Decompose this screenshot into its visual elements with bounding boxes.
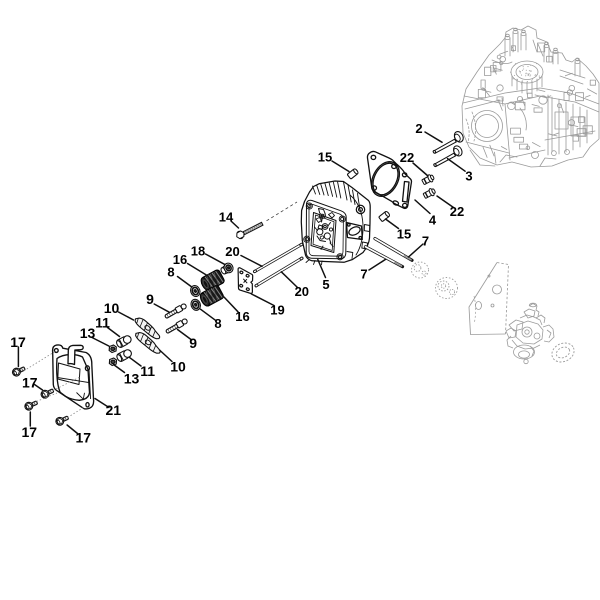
svg-text:22: 22 [400,150,414,165]
svg-text:15: 15 [318,150,332,165]
svg-text:8: 8 [214,316,221,331]
svg-text:7: 7 [422,234,429,249]
svg-text:13: 13 [80,325,96,341]
svg-text:9: 9 [146,291,154,307]
svg-text:7: 7 [360,267,367,282]
svg-text:20: 20 [225,244,239,259]
svg-text:16: 16 [235,309,249,324]
svg-text:17: 17 [10,334,26,350]
svg-text:9: 9 [189,335,197,351]
svg-text:21: 21 [106,402,122,418]
svg-text:20: 20 [295,284,309,299]
svg-text:8: 8 [167,264,174,279]
svg-text:2: 2 [415,121,422,136]
svg-text:11: 11 [95,315,110,331]
svg-text:17: 17 [22,374,38,390]
svg-text:16: 16 [173,252,187,267]
svg-text:3: 3 [465,169,472,184]
svg-text:5: 5 [322,277,329,292]
svg-text:17: 17 [76,430,92,446]
svg-text:10: 10 [170,358,186,374]
svg-text:11: 11 [140,363,155,379]
svg-text:19: 19 [270,303,284,318]
svg-text:13: 13 [124,371,140,387]
svg-text:18: 18 [191,244,205,259]
svg-text:14: 14 [219,210,234,225]
svg-text:22: 22 [450,204,464,219]
svg-text:4: 4 [429,213,437,228]
svg-text:17: 17 [22,424,38,440]
svg-text:15: 15 [397,227,411,242]
